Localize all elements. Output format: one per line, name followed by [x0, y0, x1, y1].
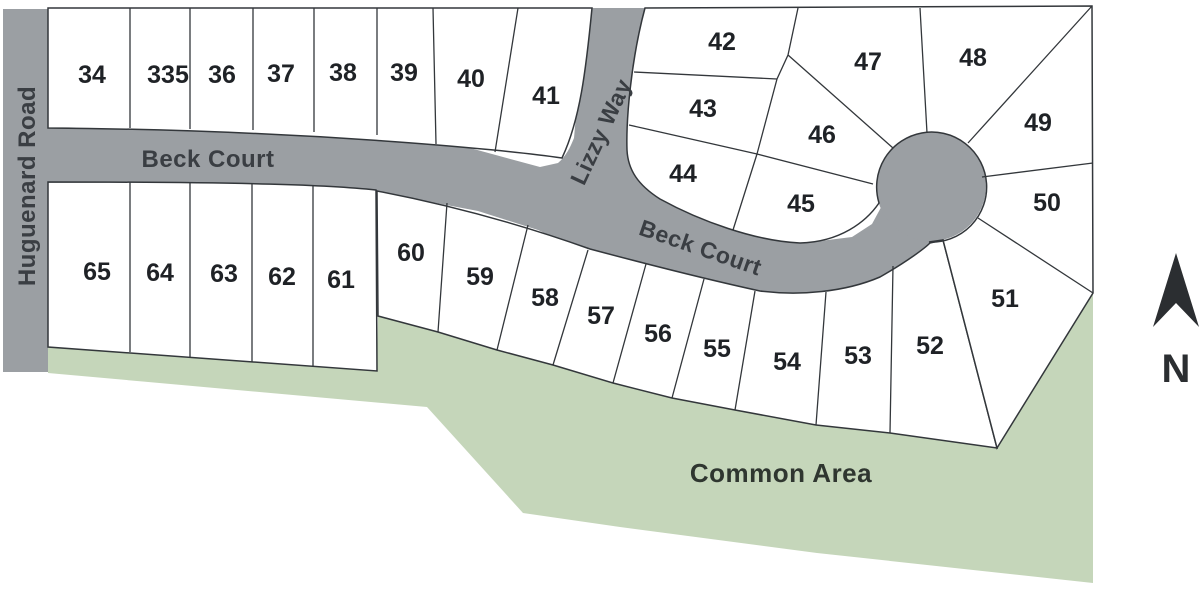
lot-number-label: 56 — [644, 320, 672, 348]
lot-number-label: 65 — [83, 258, 111, 286]
lot-number-label: 41 — [532, 82, 560, 110]
lot-number-label: 51 — [991, 285, 1019, 313]
lot-number-label: 39 — [390, 59, 418, 87]
lot-number-label: 36 — [208, 61, 236, 89]
lot-number-label: 54 — [773, 348, 801, 376]
north-compass: N — [1153, 253, 1199, 391]
lot-number-label: 52 — [916, 332, 944, 360]
lot-number-label: 63 — [210, 260, 238, 288]
lot-number-label: 60 — [397, 239, 425, 267]
lot-number-label: 48 — [959, 44, 987, 72]
lot-number-label: 43 — [689, 95, 717, 123]
lot-number-label: 58 — [531, 284, 559, 312]
plat-map: Huguenard Road Beck Court Beck Court Liz… — [0, 0, 1200, 590]
lot-number-label: 47 — [854, 48, 882, 76]
plat-map-canvas: Huguenard Road Beck Court Beck Court Liz… — [0, 0, 1200, 590]
lot-number-label: 49 — [1024, 109, 1052, 137]
huguenard-road-label: Huguenard Road — [14, 86, 41, 286]
lot-number-label: 45 — [787, 190, 815, 218]
lot-number-label: 37 — [267, 60, 295, 88]
beck-court-label-west: Beck Court — [141, 146, 274, 173]
lot-number-label: 34 — [78, 61, 106, 89]
lot-number-label: 61 — [327, 266, 355, 294]
lot-number-label: 64 — [146, 259, 174, 287]
lot-number-label: 46 — [808, 121, 836, 149]
lot-number-label: 335 — [147, 61, 189, 89]
north-label: N — [1162, 347, 1191, 391]
lot-number-label: 59 — [466, 263, 494, 291]
north-arrow-icon — [1153, 253, 1199, 327]
lot-number-label: 50 — [1033, 189, 1061, 217]
common-area-label: Common Area — [690, 458, 872, 488]
lot-number-label: 40 — [457, 65, 485, 93]
lot-number-label: 53 — [844, 342, 872, 370]
lot-number-label: 42 — [708, 28, 736, 56]
lot-number-label: 62 — [268, 263, 296, 291]
lot-number-label: 55 — [703, 335, 731, 363]
lot-number-label: 38 — [329, 59, 357, 87]
lot-number-label: 57 — [587, 302, 615, 330]
lot-number-label: 44 — [669, 160, 697, 188]
